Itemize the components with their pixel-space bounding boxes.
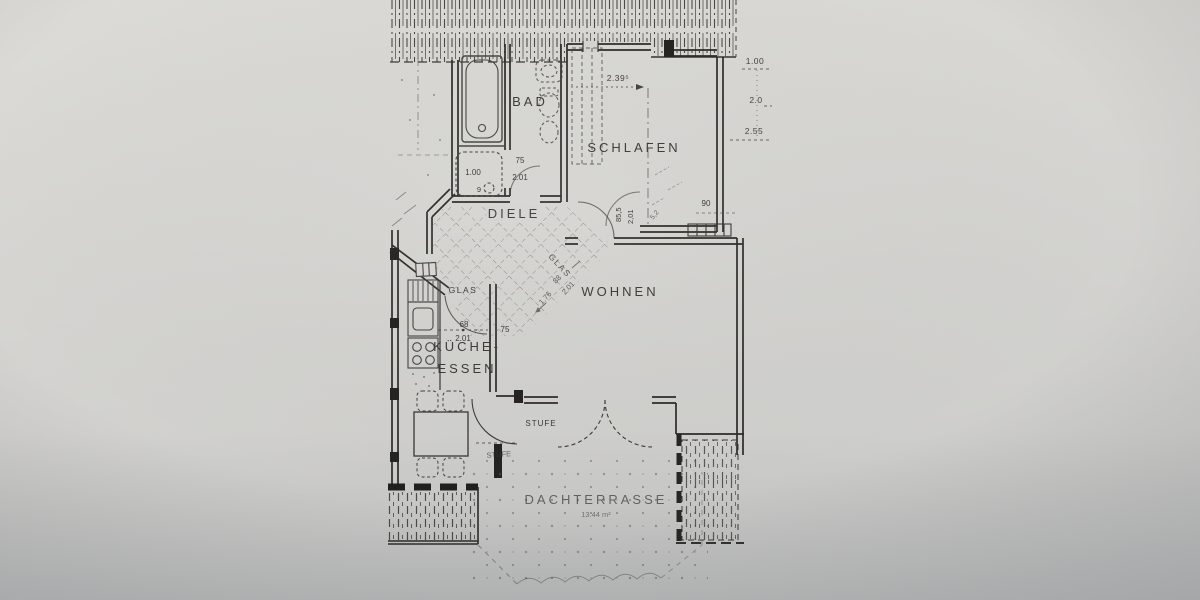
photo-bottom-shade: [0, 430, 1200, 600]
floor-plan-photo: BAD SCHLAFEN DIELE WOHNEN KÜCHE- ESSEN D…: [0, 0, 1200, 600]
floor-plan-drawing: BAD SCHLAFEN DIELE WOHNEN KÜCHE- ESSEN D…: [0, 0, 1200, 600]
